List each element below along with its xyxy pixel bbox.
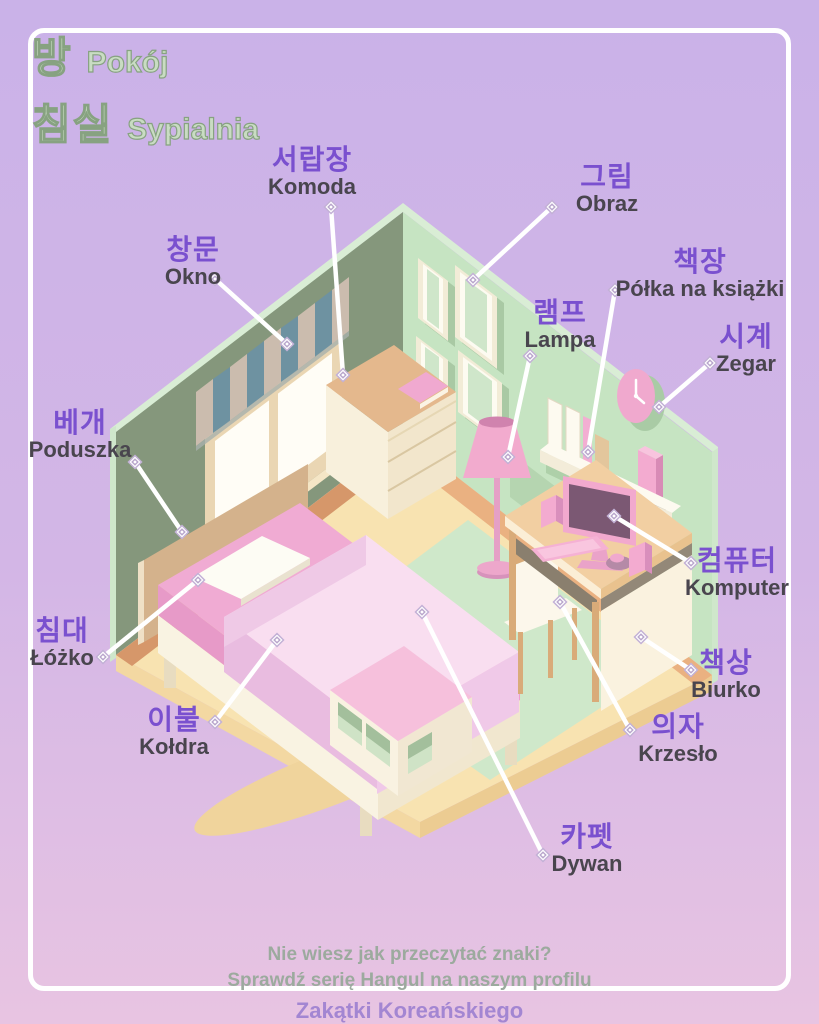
connector-clock — [659, 363, 710, 407]
label-lamp: 램프 Lampa — [525, 298, 596, 353]
mouse-graphic — [610, 554, 624, 563]
label-pillow: 베개 Poduszka — [29, 408, 132, 463]
footer-hint-line2: Sprawdź serię Hangul na naszym profilu — [0, 970, 819, 992]
title-polish-bedroom: Sypialnia — [127, 113, 259, 147]
label-chair: 의자 Krzesło — [638, 712, 717, 767]
label-picture: 그림 Obraz — [576, 162, 638, 217]
label-dresser: 서랍장 Komoda — [268, 145, 356, 200]
room-illustration — [0, 0, 819, 1024]
label-clock: 시계 Zegar — [716, 322, 776, 377]
title-polish-room: Pokój — [87, 46, 169, 80]
poster: 방 Pokój 침실 Sypialnia 서랍장 Komoda 그림 Obraz… — [0, 0, 819, 1024]
footer-brand: Zakątki Koreańskiego — [0, 998, 819, 1024]
label-window: 창문 Okno — [165, 235, 221, 290]
label-bookshelf: 책장 Półka na książki — [616, 247, 785, 302]
label-duvet: 이불 Kołdra — [139, 705, 209, 760]
label-desk: 책상 Biurko — [691, 648, 761, 703]
page-title: 방 Pokój 침실 Sypialnia — [32, 24, 259, 152]
connector-picture — [473, 207, 552, 280]
title-korean-bedroom: 침실 — [32, 91, 113, 152]
footer-hint-line1: Nie wiesz jak przeczytać znaki? — [0, 944, 819, 966]
label-bed: 침대 Łóżko — [30, 616, 94, 671]
label-carpet: 카펫 Dywan — [552, 822, 623, 877]
label-computer: 컴퓨터 Komputer — [685, 546, 789, 601]
title-korean-room: 방 — [32, 24, 73, 85]
